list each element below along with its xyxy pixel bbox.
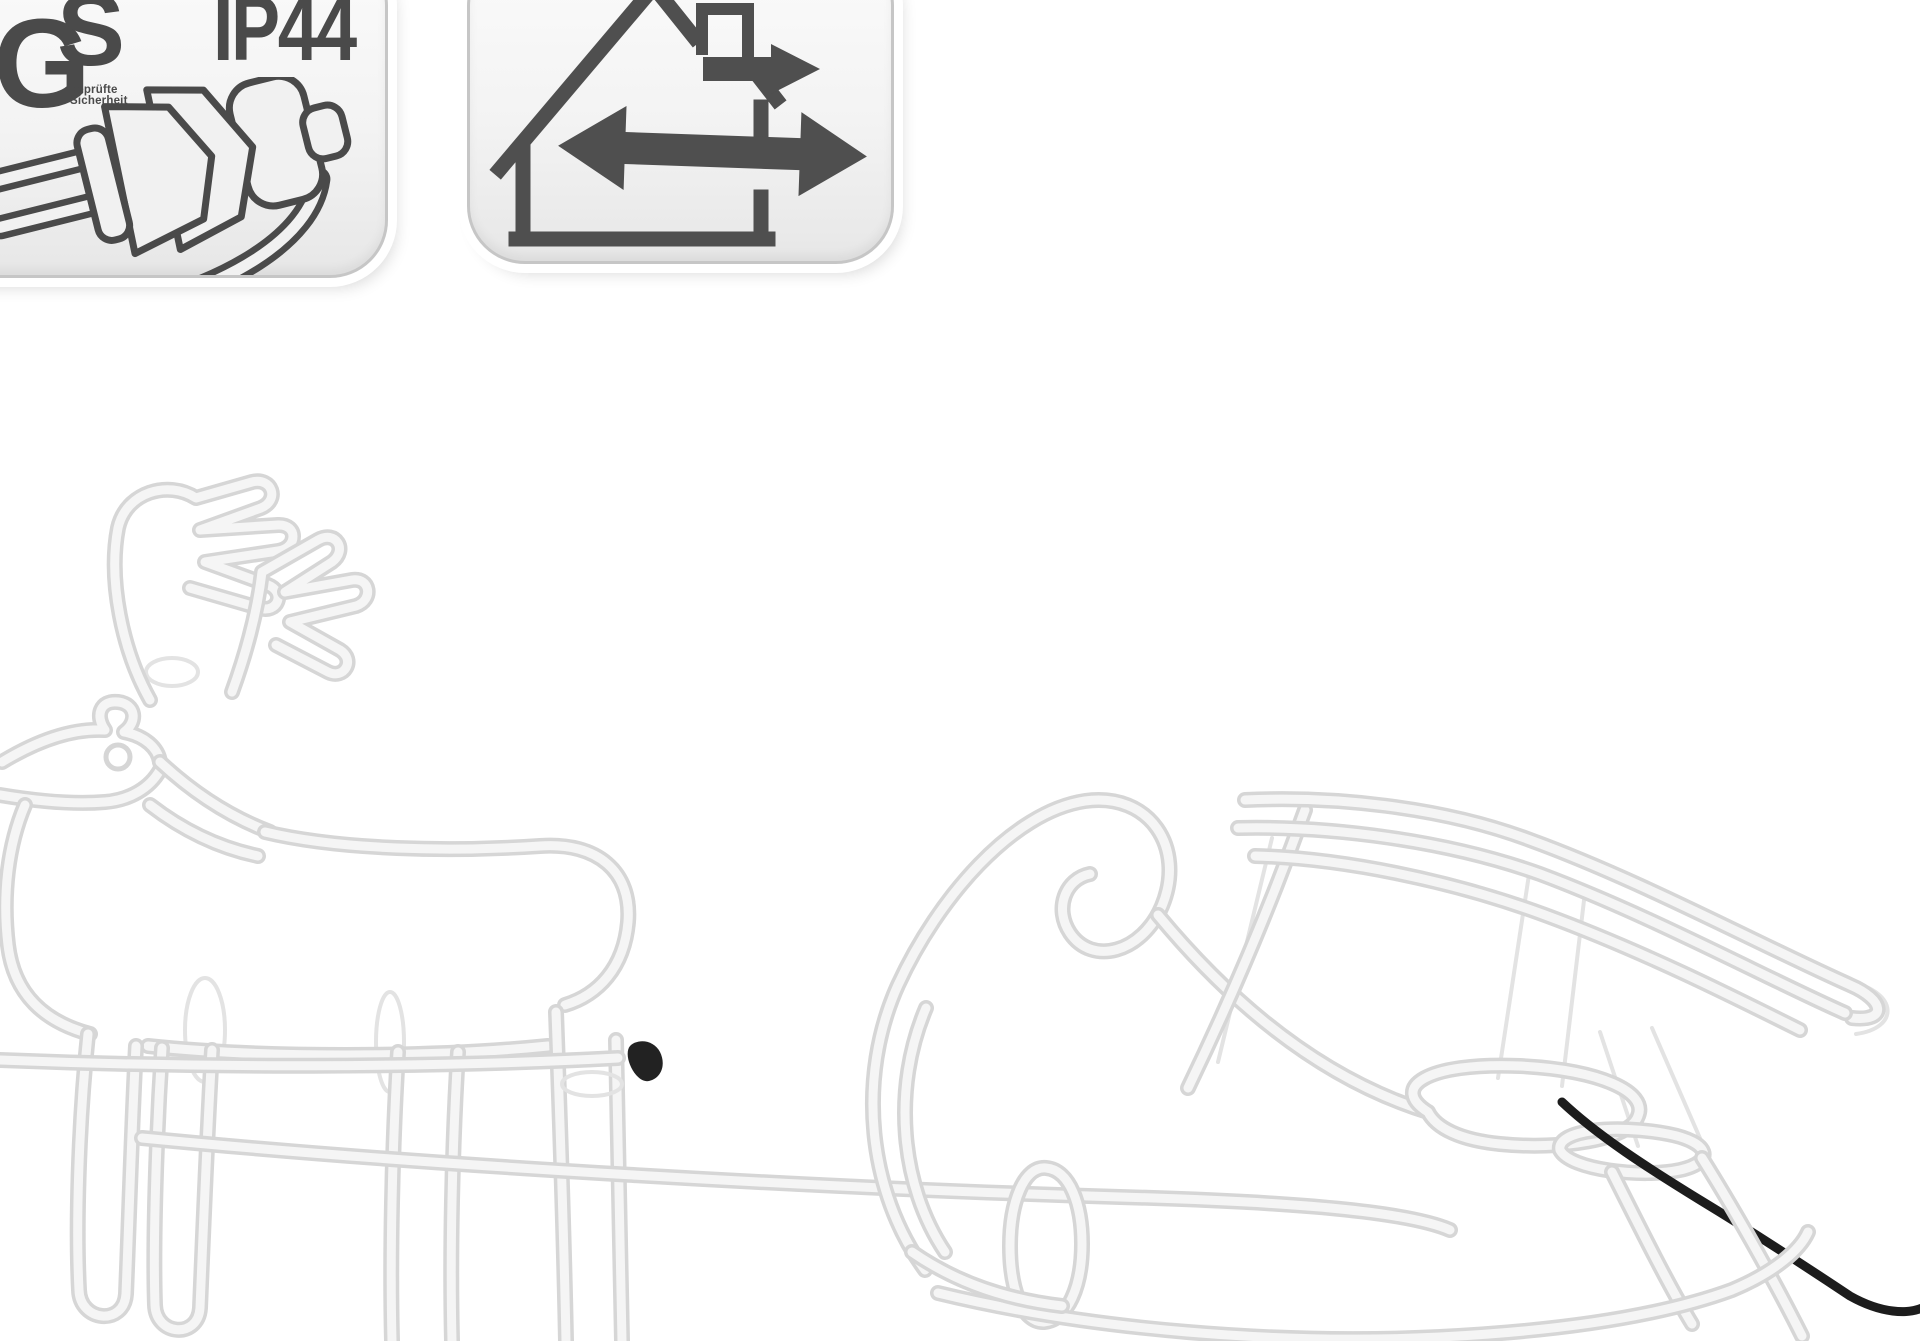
sleigh-figure (873, 799, 1920, 1339)
antlers (115, 481, 368, 700)
reindeer-figure (0, 481, 628, 1341)
product-photo: G S geprüfte Sicherheit IP44 (0, 0, 1920, 1341)
tow-rope (142, 1138, 1450, 1230)
rope-light-scene (0, 0, 1920, 1341)
cable-connector (628, 1041, 663, 1081)
reindeer-eye (106, 745, 130, 769)
